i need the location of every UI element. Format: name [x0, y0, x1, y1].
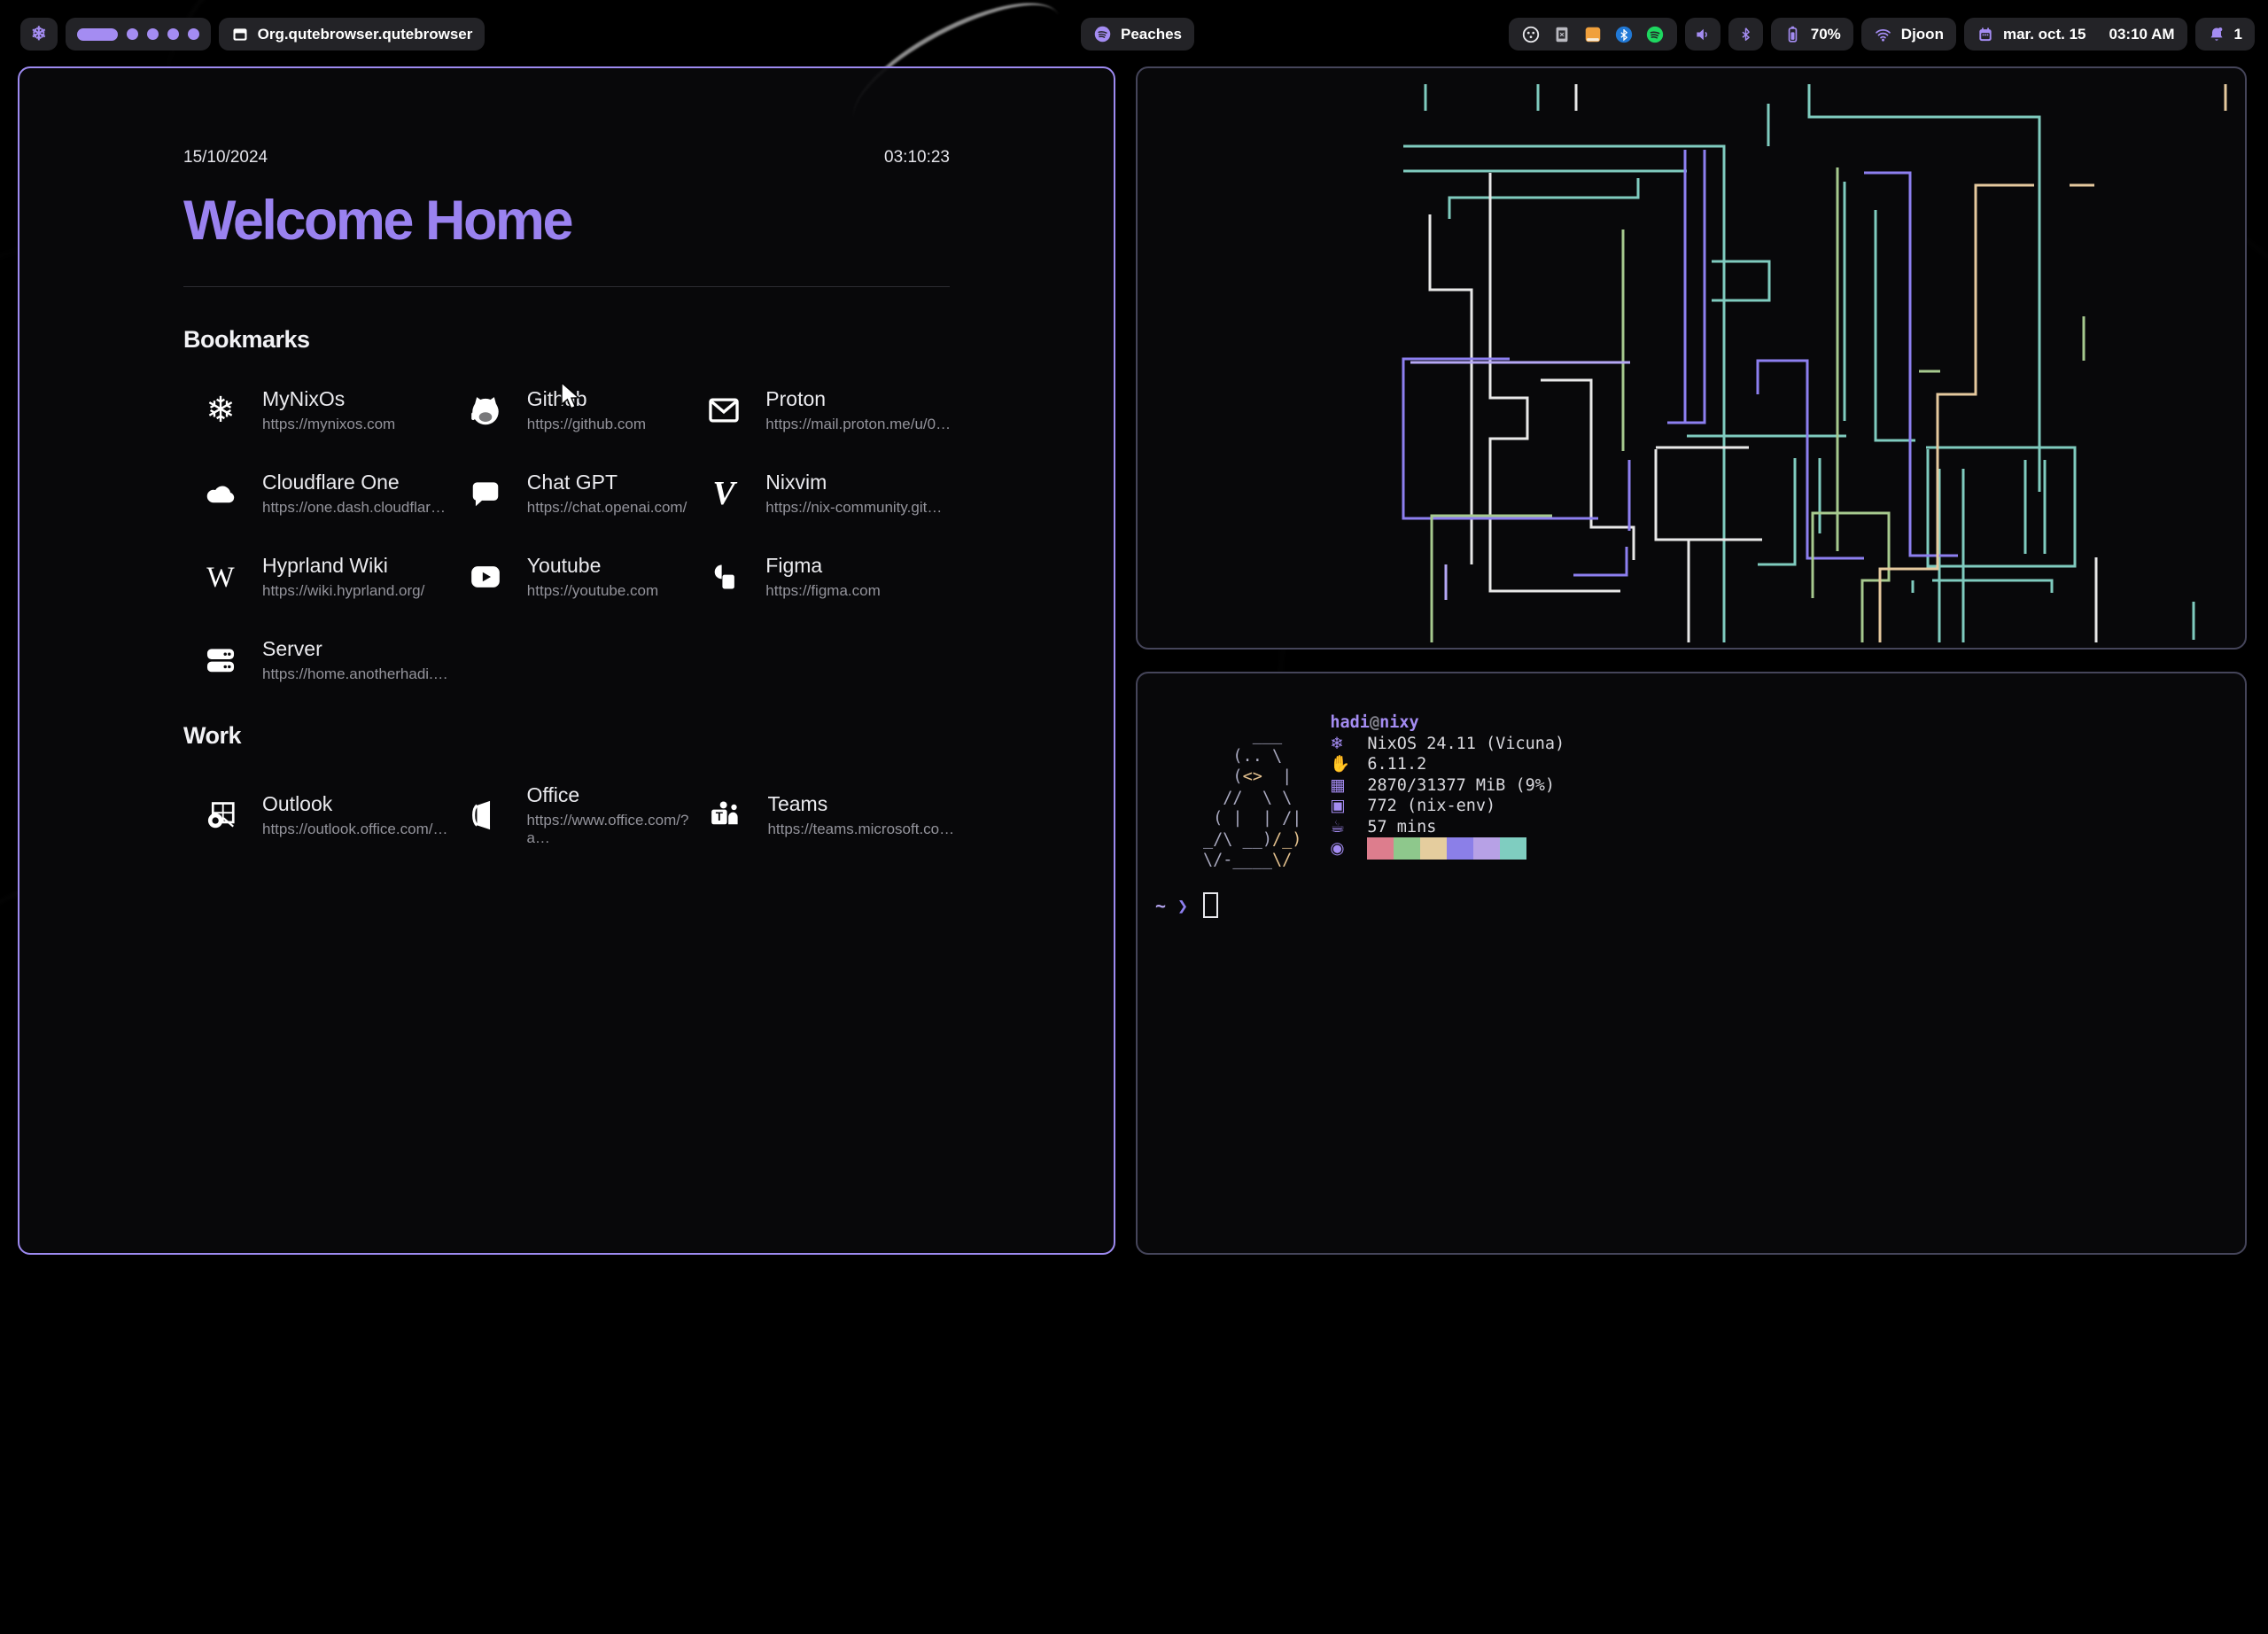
color-swatch — [1500, 837, 1526, 860]
color-swatch — [1420, 837, 1447, 860]
bookmark-title: Hyprland Wiki — [262, 554, 424, 578]
bookmark-text: Serverhttps://home.anotherhadi.… — [262, 637, 448, 683]
nixos-menu-button[interactable]: ❄ — [20, 18, 58, 51]
bookmark-server[interactable]: Serverhttps://home.anotherhadi.… — [183, 637, 448, 683]
volume-pill[interactable] — [1685, 18, 1720, 51]
fastfetch-row: ✋6.11.2 — [1330, 754, 1565, 775]
active-window-pill: Org.qutebrowser.qutebrowser — [219, 18, 485, 51]
prompt-symbol: ❯ — [1177, 895, 1188, 916]
bookmark-url: https://figma.com — [765, 582, 880, 600]
active-window-title: Org.qutebrowser.qutebrowser — [258, 26, 473, 43]
bookmark-title: Youtube — [527, 554, 658, 578]
files-icon[interactable] — [1583, 25, 1603, 44]
bookmark-url: https://chat.openai.com/ — [527, 499, 687, 517]
pipe-segment — [1656, 449, 1762, 540]
memory-icon: ▦ — [1330, 775, 1353, 797]
bookmark-url: https://outlook.office.com/… — [262, 821, 447, 838]
bookmark-title: Nixvim — [765, 471, 942, 494]
fastfetch-terminal-window: ___ (.. \ (<> | // \ \ ( | | /| _/\ __)/… — [1136, 672, 2247, 1255]
workspace-3[interactable] — [147, 28, 159, 40]
bookmark-title: Chat GPT — [527, 471, 687, 494]
pipe-segment — [1449, 178, 1638, 219]
pipes-terminal-window — [1136, 66, 2247, 650]
battery-percent: 70% — [1811, 26, 1841, 43]
bookmark-outlook[interactable]: Outlookhttps://outlook.office.com/… — [183, 783, 447, 847]
pipe-segment — [1541, 380, 1634, 560]
divider — [183, 286, 950, 287]
bookmark-title: Proton — [765, 387, 951, 411]
color-swatch — [1394, 837, 1420, 860]
wifi-ssid: Djoon — [1901, 26, 1944, 43]
system-tray — [1509, 18, 1677, 51]
github-icon — [466, 391, 505, 430]
server-icon — [201, 641, 240, 680]
bookmark-teams[interactable]: TTeamshttps://teams.microsoft.co… — [688, 783, 954, 847]
office-icon — [465, 796, 504, 835]
pipe-segment — [1864, 173, 1958, 556]
spotify-green-icon[interactable] — [1645, 25, 1665, 44]
bookmark-figma[interactable]: Figmahttps://figma.com — [687, 554, 951, 600]
bookmark-text: Hyprland Wikihttps://wiki.hyprland.org/ — [262, 554, 424, 600]
calendar-icon — [1977, 26, 1994, 43]
palette-row: ◉ — [1330, 837, 1565, 860]
palette-icon: ◉ — [1330, 838, 1353, 860]
pipe-segment — [1432, 516, 1552, 642]
pipe-segment — [1813, 513, 1889, 642]
qutebrowser-window: 15/10/2024 03:10:23 Welcome Home Bookmar… — [18, 66, 1115, 1255]
fastfetch-info: hadi@nixy ❄NixOS 24.11 (Vicuna)✋6.11.2▦2… — [1330, 712, 1565, 871]
bookmark-title: Cloudflare One — [262, 471, 446, 494]
bookmark-url: https://youtube.com — [527, 582, 658, 600]
workspace-2[interactable] — [127, 28, 138, 40]
bookmark-text: Nixvimhttps://nix-community.git… — [765, 471, 942, 517]
notification-count: 1 — [2234, 26, 2242, 43]
bell-icon — [2208, 26, 2225, 43]
svg-text:V: V — [713, 477, 738, 510]
battery-pill[interactable]: 70% — [1771, 18, 1853, 51]
workspace-4[interactable] — [167, 28, 179, 40]
start-date: 15/10/2024 — [183, 148, 268, 167]
top-bar-right: 70% Djoon mar. oct. 15 03:10 AM 1 — [1509, 18, 2255, 51]
bookmark-title: Github — [527, 387, 646, 411]
pipe-segment — [1932, 580, 2052, 593]
workspaces-indicator[interactable] — [66, 18, 211, 51]
section-heading-bookmarks: Bookmarks — [183, 326, 950, 354]
bookmark-youtube[interactable]: Youtubehttps://youtube.com — [448, 554, 687, 600]
figma-icon — [704, 557, 743, 596]
bookmark-title: Figma — [765, 554, 880, 578]
bookmark-url: https://github.com — [527, 416, 646, 433]
outlook-icon — [201, 796, 240, 835]
fastfetch-rows: ❄NixOS 24.11 (Vicuna)✋6.11.2▦2870/31377 … — [1330, 734, 1565, 838]
fastfetch-value: 6.11.2 — [1367, 754, 1426, 775]
os-snowflake-icon: ❄ — [1330, 734, 1353, 755]
pipe-segment — [1573, 547, 1627, 575]
bookmark-url: https://nix-community.git… — [765, 499, 942, 517]
shell-prompt[interactable]: ~ ❯ — [1155, 892, 1218, 918]
bookmark-text: Officehttps://www.office.com/?a… — [526, 783, 688, 847]
battery-icon — [1783, 25, 1802, 43]
bookmark-nixvim[interactable]: VNixvimhttps://nix-community.git… — [687, 471, 951, 517]
bookmark-office[interactable]: Officehttps://www.office.com/?a… — [447, 783, 688, 847]
bluetooth-icon[interactable] — [1614, 25, 1634, 44]
fastfetch-value: 2870/31377 MiB (9%) — [1367, 775, 1555, 797]
bookmark-grid: Outlookhttps://outlook.office.com/…Offic… — [183, 783, 950, 847]
top-bar: ❄ Org.qutebrowser.qutebrowser Peaches 70… — [20, 18, 2255, 51]
svg-text:T: T — [716, 810, 724, 823]
speaker-icon — [1694, 26, 1712, 43]
prompt-cwd: ~ — [1155, 895, 1166, 916]
workspace-5[interactable] — [188, 28, 199, 40]
color-swatch — [1447, 837, 1473, 860]
bookmark-url: https://mail.proton.me/u/0… — [765, 416, 951, 433]
fastfetch-value: 772 (nix-env) — [1367, 796, 1495, 817]
bookmark-proton[interactable]: Protonhttps://mail.proton.me/u/0… — [687, 387, 951, 433]
fastfetch-row: ❄NixOS 24.11 (Vicuna) — [1330, 734, 1565, 755]
fastfetch-row: ▦2870/31377 MiB (9%) — [1330, 775, 1565, 797]
pipe-segment — [1880, 185, 2034, 642]
pipe-segment — [1926, 447, 2075, 566]
bookmark-url: https://teams.microsoft.co… — [767, 821, 954, 838]
fastfetch-row: ▣772 (nix-env) — [1330, 796, 1565, 817]
notifications-pill[interactable]: 1 — [2195, 18, 2255, 51]
fastfetch-value: NixOS 24.11 (Vicuna) — [1367, 734, 1565, 755]
bookmark-text: Githubhttps://github.com — [527, 387, 646, 433]
nixos-logo-icon: ❄ — [31, 25, 47, 43]
pipe-segment — [1403, 146, 1724, 642]
bookmark-title: Server — [262, 637, 448, 661]
keyboard-icon[interactable] — [1552, 25, 1572, 44]
bookmark-url: https://wiki.hyprland.org/ — [262, 582, 424, 600]
bookmark-title: Outlook — [262, 792, 447, 816]
mouse-cursor — [560, 383, 585, 411]
bluetooth-pill[interactable] — [1728, 18, 1763, 51]
svg-text:W: W — [206, 561, 235, 594]
bookmark-mynixos[interactable]: ❄MyNixOshttps://mynixos.com — [183, 387, 448, 433]
nixvim-icon: V — [704, 474, 743, 513]
at-separator: @ — [1370, 713, 1379, 732]
workspace-1-active[interactable] — [77, 28, 118, 41]
pipe-segment — [1758, 458, 1795, 564]
nixos-icon: ❄ — [201, 391, 240, 430]
uptime-icon: ☕ — [1330, 817, 1353, 838]
fastfetch-row: ☕57 mins — [1330, 817, 1565, 838]
pipes-screensaver — [1138, 68, 2245, 648]
bookmark-text: Outlookhttps://outlook.office.com/… — [262, 792, 447, 838]
bookmark-text: MyNixOshttps://mynixos.com — [262, 387, 395, 433]
fastfetch-output: ___ (.. \ (<> | // \ \ ( | | /| _/\ __)/… — [1203, 712, 1565, 871]
bookmark-grid: ❄MyNixOshttps://mynixos.comGithubhttps:/… — [183, 387, 950, 683]
bookmark-url: https://mynixos.com — [262, 416, 395, 433]
terminal-cursor — [1203, 892, 1218, 918]
bookmark-chat-gpt[interactable]: Chat GPThttps://chat.openai.com/ — [448, 471, 687, 517]
wiki-icon: W — [201, 557, 240, 596]
youtube-icon — [466, 557, 505, 596]
bookmark-text: Chat GPThttps://chat.openai.com/ — [527, 471, 687, 517]
hostname: nixy — [1379, 713, 1419, 732]
bookmark-text: Teamshttps://teams.microsoft.co… — [767, 792, 954, 838]
username: hadi — [1330, 713, 1370, 732]
mail-icon — [704, 391, 743, 430]
clock-time: 03:10 AM — [2109, 26, 2175, 43]
bookmark-hyprland-wiki[interactable]: WHyprland Wikihttps://wiki.hyprland.org/ — [183, 554, 448, 600]
bookmark-text: Cloudflare Onehttps://one.dash.cloudflar… — [262, 471, 446, 517]
chat-icon — [466, 474, 505, 513]
page-title: Welcome Home — [183, 189, 950, 253]
wifi-icon — [1874, 25, 1892, 43]
bookmark-text: Youtubehttps://youtube.com — [527, 554, 658, 600]
color-swatch — [1473, 837, 1500, 860]
pipe-segment — [1430, 214, 1472, 564]
wifi-pill[interactable]: Djoon — [1861, 18, 1956, 51]
clock-date: mar. oct. 15 — [2003, 26, 2086, 43]
start-time: 03:10:23 — [884, 148, 950, 167]
window-icon — [231, 26, 249, 43]
media-track-label: Peaches — [1121, 26, 1182, 43]
bluetooth-icon — [1737, 26, 1754, 43]
bookmark-text: Protonhttps://mail.proton.me/u/0… — [765, 387, 951, 433]
packages-icon: ▣ — [1330, 796, 1353, 817]
start-date-row: 15/10/2024 03:10:23 — [183, 148, 950, 167]
pipe-segment — [1712, 261, 1769, 300]
top-bar-left: ❄ Org.qutebrowser.qutebrowser — [20, 18, 485, 51]
spotify-icon — [1093, 25, 1112, 43]
terminal-color-swatches — [1367, 837, 1526, 860]
bookmark-url: https://www.office.com/?a… — [526, 812, 688, 847]
teams-icon: T — [706, 796, 745, 835]
clock-pill[interactable]: mar. oct. 15 03:10 AM — [1964, 18, 2187, 51]
top-bar-center: Peaches — [1081, 18, 1194, 51]
bookmark-cloudflare-one[interactable]: Cloudflare Onehttps://one.dash.cloudflar… — [183, 471, 448, 517]
bookmark-text: Figmahttps://figma.com — [765, 554, 880, 600]
media-player-pill[interactable]: Peaches — [1081, 18, 1194, 51]
disc-icon[interactable] — [1521, 25, 1541, 44]
user-host-line: hadi@nixy — [1330, 712, 1565, 734]
kernel-icon: ✋ — [1330, 754, 1353, 775]
start-page: 15/10/2024 03:10:23 Welcome Home Bookmar… — [19, 68, 1114, 847]
bookmark-title: Teams — [767, 792, 954, 816]
bookmark-title: MyNixOs — [262, 387, 395, 411]
color-swatch — [1367, 837, 1394, 860]
pipe-segment — [1758, 361, 1864, 558]
section-heading-work: Work — [183, 722, 950, 750]
bookmark-url: https://one.dash.cloudflar… — [262, 499, 446, 517]
tux-ascii-art: ___ (.. \ (<> | // \ \ ( | | /| _/\ __)/… — [1203, 725, 1301, 871]
bookmark-title: Office — [526, 783, 688, 807]
bookmark-url: https://home.anotherhadi.… — [262, 665, 448, 683]
cloud-icon — [201, 474, 240, 513]
fastfetch-value: 57 mins — [1367, 817, 1436, 838]
